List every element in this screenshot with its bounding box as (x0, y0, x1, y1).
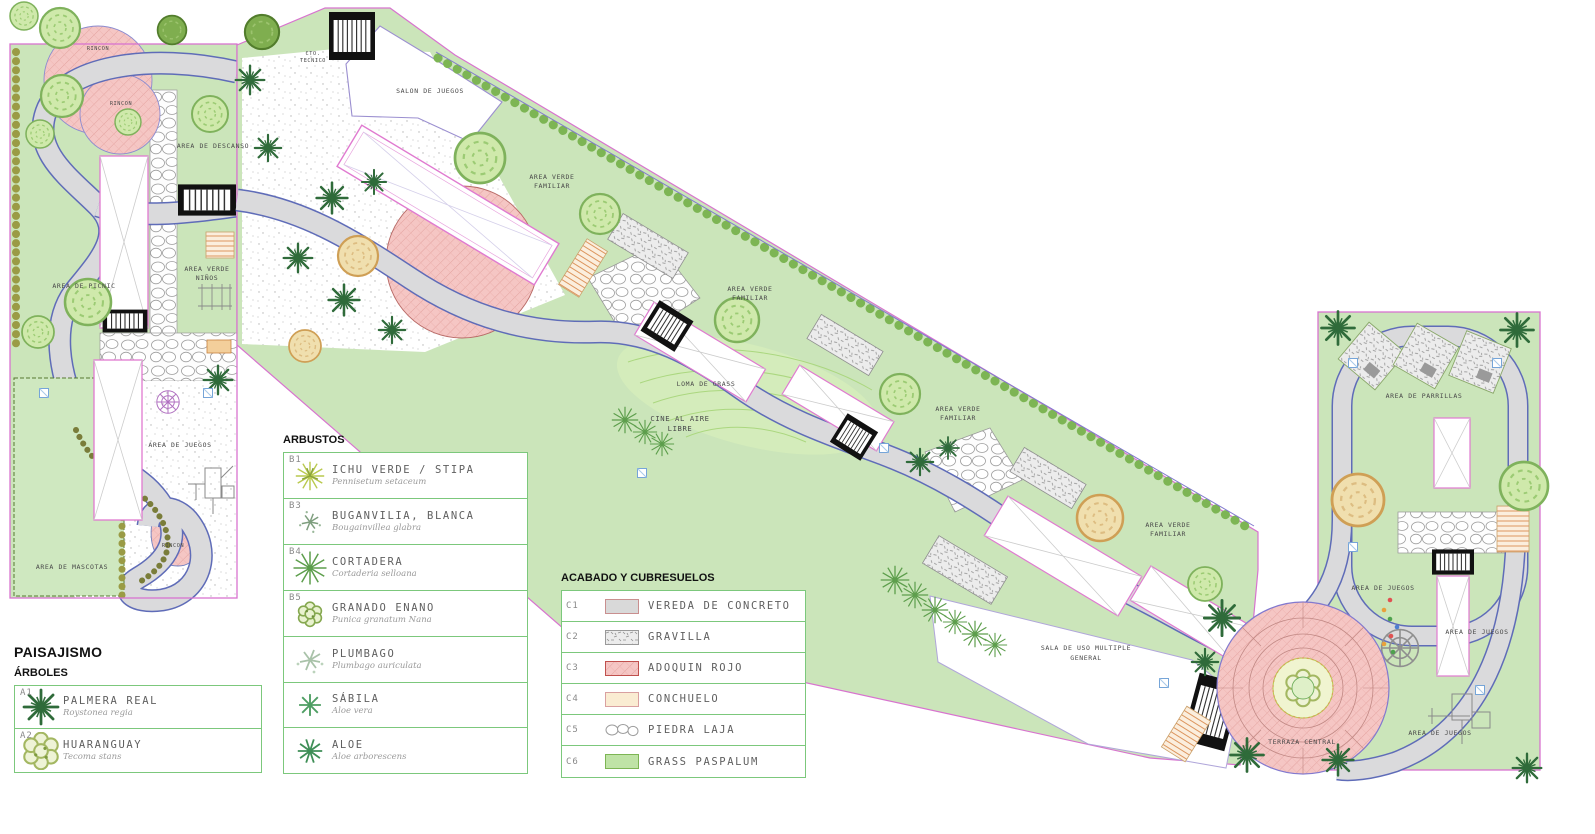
item-code: B1 (289, 455, 302, 465)
item-code: C4 (566, 694, 596, 704)
palm-symbol (255, 135, 281, 161)
tree-symbol (40, 8, 80, 48)
item-name: PALMERA REAL (63, 695, 158, 708)
legend-item: B1 ICHU VERDE / STIPA Pennisetum setaceu… (284, 453, 527, 499)
stairs (1497, 506, 1529, 552)
legend-item: PLUMBAGO Plumbago auriculata (284, 637, 527, 683)
legend-item: SÁBILA Aloe vera (284, 683, 527, 728)
item-name: PIEDRA LAJA (648, 724, 735, 736)
item-code: C6 (566, 757, 596, 767)
item-name: ADOQUIN ROJO (648, 662, 743, 674)
central-terrace (1217, 602, 1389, 774)
tree-symbol (715, 298, 759, 342)
gravel-swatch (605, 630, 639, 645)
tree-symbol (245, 15, 279, 49)
palm-symbol (1323, 745, 1354, 776)
item-latin: Aloe vera (332, 706, 380, 717)
item-name: VEREDA DE CONCRETO (648, 600, 791, 612)
palm-symbol (1501, 314, 1534, 347)
tree-symbol (880, 374, 920, 414)
legend-item: C5 PIEDRA LAJA (562, 715, 805, 746)
tree-symbol (1188, 567, 1222, 601)
shell-swatch (605, 692, 639, 707)
item-name: ICHU VERDE / STIPA (332, 464, 475, 477)
stair-core (1432, 549, 1474, 574)
item-latin: Cortaderia selloana (332, 569, 417, 580)
item-code: C5 (566, 725, 596, 735)
item-code: C2 (566, 632, 596, 642)
item-name: CORTADERA (332, 556, 417, 569)
item-name: GRAVILLA (648, 631, 711, 643)
flagstone-swatch (605, 722, 639, 738)
item-name: HUARANGUAY (63, 739, 142, 752)
tree-symbol (1332, 474, 1384, 526)
item-name: SÁBILA (332, 693, 380, 706)
stairs (206, 232, 234, 258)
palm-symbol (236, 66, 265, 95)
palm-symbol (284, 244, 313, 273)
tree-symbol (338, 236, 378, 276)
tree-symbol (10, 2, 38, 30)
palm-symbol (937, 437, 959, 459)
palm-symbol (1513, 754, 1542, 783)
legend-arbustos: ARBUSTOS B1 ICHU VERDE / STIPA Pennisetu… (283, 434, 528, 774)
grass-swatch (605, 754, 639, 769)
legend-item: B5 GRANADO ENANO Punica granatum Nana (284, 591, 527, 637)
tree-symbol (455, 133, 505, 183)
bench (207, 340, 231, 353)
item-latin: Aloe arborescens (332, 752, 406, 763)
light-marker-icon (204, 389, 213, 398)
legend-item: C1 VEREDA DE CONCRETO (562, 591, 805, 622)
item-code: A2 (20, 731, 33, 741)
legend-subtitle-arboles: ÁRBOLES (14, 667, 262, 679)
web-climber-icon (1382, 630, 1419, 667)
legend-title: PAISAJISMO (14, 644, 262, 660)
palm-symbol (907, 449, 933, 475)
legend-item: C3 ADOQUIN ROJO (562, 653, 805, 684)
arbustos-table: B1 ICHU VERDE / STIPA Pennisetum setaceu… (283, 452, 528, 774)
item-name: CONCHUELO (648, 693, 719, 705)
item-name: PLUMBAGO (332, 648, 422, 661)
stair-core (178, 184, 236, 215)
light-marker-icon (1349, 543, 1358, 552)
legend-subtitle-acabados: ACABADO Y CUBRESUELOS (561, 572, 806, 584)
legend-item: C2 GRAVILLA (562, 622, 805, 653)
legend-subtitle-arbustos: ARBUSTOS (283, 434, 528, 446)
palm-symbol (1231, 739, 1264, 772)
legend-paisajismo: PAISAJISMO ÁRBOLES A1 PALMERA REAL Royst… (14, 644, 262, 773)
palm-symbol (1322, 312, 1355, 345)
tower-building (1434, 418, 1470, 488)
item-code: B5 (289, 593, 302, 603)
legend-item: C6 GRASS PASPALUM (562, 746, 805, 777)
tree-symbol (158, 16, 187, 45)
item-name: BUGANVILIA, BLANCA (332, 510, 475, 523)
light-marker-icon (1476, 686, 1485, 695)
stair-core (329, 12, 375, 60)
legend-item: B4 CORTADERA Cortaderia selloana (284, 545, 527, 591)
item-latin: Roystonea regia (63, 708, 158, 719)
palm-symbol (1204, 600, 1239, 635)
item-latin: Pennisetum setaceum (332, 477, 475, 488)
light-marker-icon (880, 444, 889, 453)
tree-symbol (1077, 495, 1123, 541)
legend-item: A1 PALMERA REAL Roystonea regia (15, 686, 261, 729)
light-marker-icon (40, 389, 49, 398)
item-latin: Plumbago auriculata (332, 661, 422, 672)
tower-building (1437, 576, 1469, 676)
item-name: GRANADO ENANO (332, 602, 435, 615)
tree-symbol (1500, 462, 1548, 510)
landscape-master-plan: RINCON RINCON RINCON AREA DE DESCANSO AR… (0, 0, 1595, 834)
item-code: C3 (566, 663, 596, 673)
palm-symbol (317, 183, 348, 214)
item-latin: Bougainvillea glabra (332, 523, 475, 534)
palm-symbol (379, 317, 405, 343)
palm-symbol (329, 285, 360, 316)
tree-symbol (192, 96, 228, 132)
tree-symbol (22, 316, 54, 348)
legend-item: B3 BUGANVILIA, BLANCA Bougainvillea glab… (284, 499, 527, 545)
legend-item: C4 CONCHUELO (562, 684, 805, 715)
light-marker-icon (1349, 359, 1358, 368)
arboles-table: A1 PALMERA REAL Roystonea regia A2 HUARA… (14, 685, 262, 773)
sabila-icon (297, 692, 323, 718)
tree-symbol (26, 120, 54, 148)
tree-symbol (580, 194, 620, 234)
item-name: ALOE (332, 739, 406, 752)
palm-symbol (362, 170, 386, 194)
concrete-swatch (605, 599, 639, 614)
buganvilia-icon (295, 507, 325, 537)
item-code: B3 (289, 501, 302, 511)
item-latin: Tecoma stans (63, 752, 142, 763)
item-code: B4 (289, 547, 302, 557)
light-marker-icon (1493, 359, 1502, 368)
acabados-table: C1 VEREDA DE CONCRETO C2 GRAVILLA C3 ADO… (561, 590, 806, 778)
block-southeast (1217, 312, 1540, 774)
tree-symbol (65, 279, 111, 325)
tree-symbol (115, 109, 141, 135)
flagstone-plaza (1398, 512, 1506, 553)
tree-symbol (289, 330, 321, 362)
light-marker-icon (1160, 679, 1169, 688)
aloe-icon (296, 737, 324, 765)
tower-building (94, 360, 142, 520)
item-latin: Punica granatum Nana (332, 615, 435, 626)
legend-item: ALOE Aloe arborescens (284, 728, 527, 773)
item-code: A1 (20, 688, 33, 698)
red-paver-swatch (605, 661, 639, 676)
palm-symbol (1192, 649, 1218, 675)
tree-symbol (41, 75, 83, 117)
item-name: GRASS PASPALUM (648, 756, 759, 768)
legend-item: A2 HUARANGUAY Tecoma stans (15, 729, 261, 772)
light-marker-icon (638, 469, 647, 478)
plumbago-icon (294, 644, 326, 676)
item-code: C1 (566, 601, 596, 611)
web-climber-icon (157, 391, 179, 413)
legend-acabados: ACABADO Y CUBRESUELOS C1 VEREDA DE CONCR… (561, 572, 806, 778)
